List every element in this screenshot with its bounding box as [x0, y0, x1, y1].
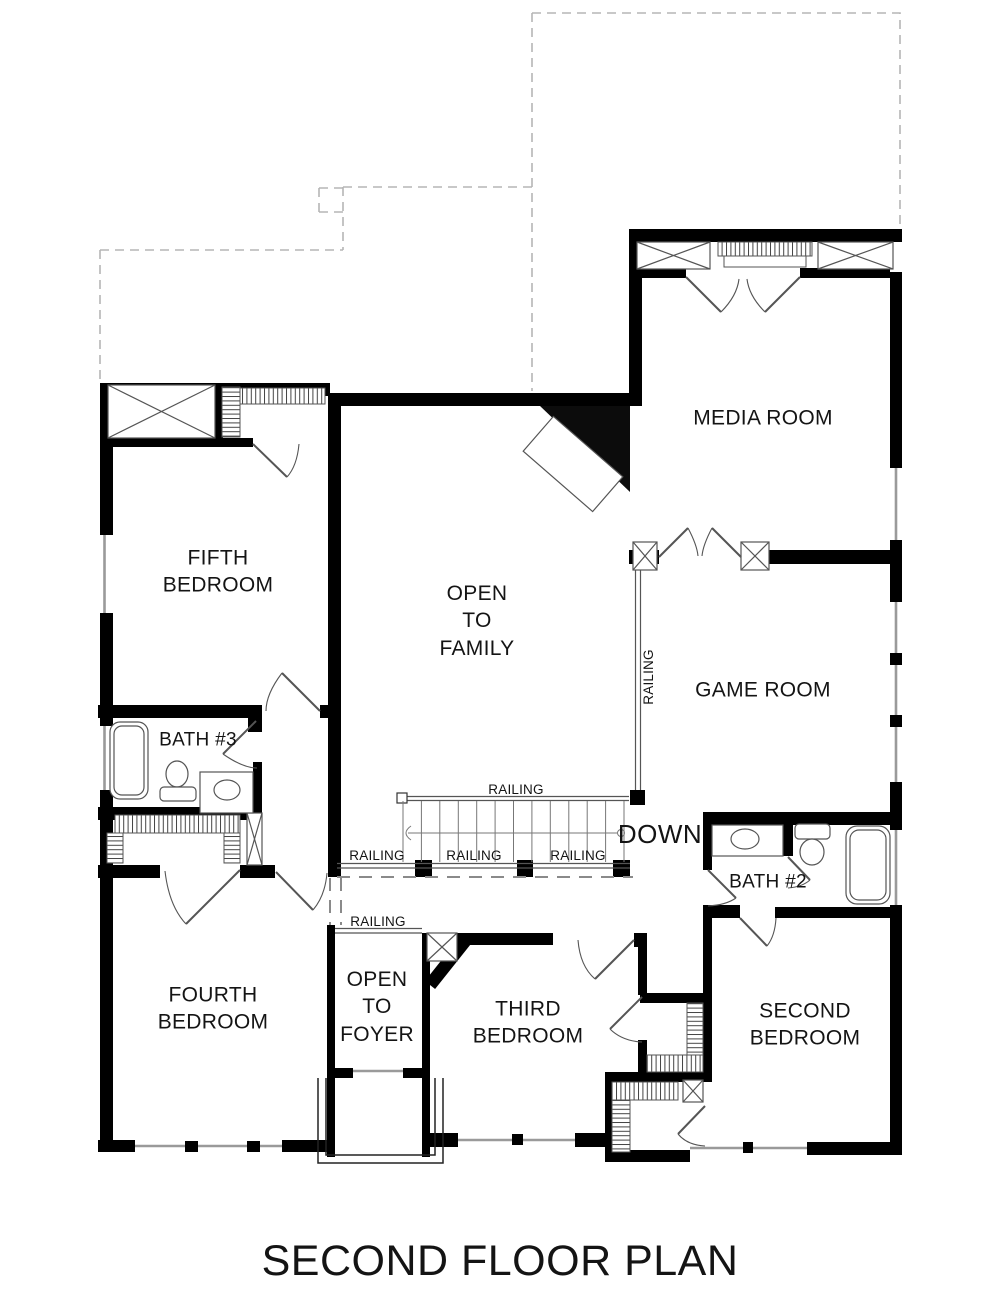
- fireplace-corner: [523, 406, 630, 512]
- roof-outline-dashed: [100, 13, 900, 391]
- floor-plan: MEDIA ROOM GAME ROOM OPEN TO FAMILY FIFT…: [0, 0, 1000, 1294]
- page-title: SECOND FLOOR PLAN: [262, 1234, 739, 1290]
- bathtub-icon: [846, 826, 890, 904]
- bathtub-icon: [110, 722, 148, 799]
- label-railing: RAILING: [349, 847, 404, 865]
- label-media-room: MEDIA ROOM: [693, 404, 833, 431]
- label-third-bedroom: THIRD BEDROOM: [473, 996, 584, 1051]
- label-bath-2: BATH #2: [729, 871, 807, 896]
- label-fourth-bedroom: FOURTH BEDROOM: [158, 982, 269, 1037]
- label-railing: RAILING: [350, 913, 405, 931]
- toilet-icon: [160, 761, 196, 801]
- column-boxes: [108, 242, 893, 1102]
- label-railing-vertical: RAILING: [640, 649, 658, 704]
- label-fifth-bedroom: FIFTH BEDROOM: [163, 545, 274, 600]
- sink-vanity-icon: [712, 825, 783, 856]
- label-railing: RAILING: [446, 847, 501, 865]
- sink-vanity-icon: [200, 772, 253, 813]
- label-game-room: GAME ROOM: [695, 676, 831, 703]
- label-railing: RAILING: [550, 847, 605, 865]
- label-bath-3: BATH #3: [159, 729, 237, 754]
- label-railing: RAILING: [488, 781, 543, 799]
- label-second-bedroom: SECOND BEDROOM: [750, 998, 861, 1053]
- toilet-icon: [795, 824, 830, 865]
- label-down: DOWN: [618, 818, 702, 852]
- label-open-to-foyer: OPEN TO FOYER: [340, 966, 414, 1048]
- label-open-to-family: OPEN TO FAMILY: [440, 580, 515, 662]
